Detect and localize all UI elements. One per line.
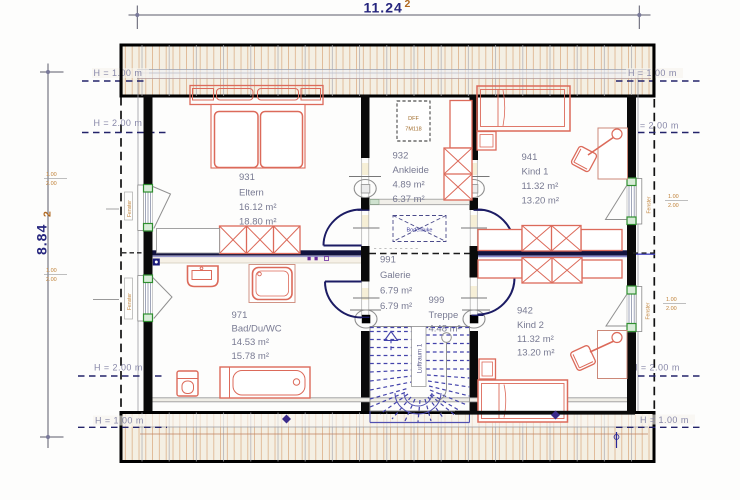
svg-text:Kind 1: Kind 1: [522, 167, 549, 178]
svg-text:1.00: 1.00: [46, 172, 57, 178]
svg-text:Kind 2: Kind 2: [517, 320, 544, 331]
svg-text:991: 991: [380, 255, 396, 266]
svg-text:4.89 m²: 4.89 m²: [393, 180, 425, 191]
svg-text:Fenster: Fenster: [127, 200, 133, 217]
svg-text:14.53 m²: 14.53 m²: [232, 337, 270, 348]
svg-text:13.20 m²: 13.20 m²: [522, 196, 560, 207]
svg-text:1.00: 1.00: [668, 194, 679, 200]
svg-text:1.00: 1.00: [666, 297, 677, 303]
svg-text:Treppe: Treppe: [429, 310, 459, 321]
svg-text:Bodenluke: Bodenluke: [407, 228, 433, 234]
svg-text:DFF: DFF: [408, 116, 419, 122]
svg-text:942: 942: [517, 306, 533, 317]
svg-text:8.84: 8.84: [34, 224, 50, 255]
svg-text:H = 2.00 m: H = 2.00 m: [94, 363, 143, 373]
svg-text:H = 2.00 m: H = 2.00 m: [630, 121, 679, 131]
svg-text:1.00: 1.00: [46, 268, 57, 274]
svg-text:H = 1.00 m: H = 1.00 m: [628, 68, 677, 78]
svg-text:Eltern: Eltern: [239, 188, 264, 199]
svg-text:H = 1.00 m: H = 1.00 m: [640, 415, 689, 425]
svg-text:2: 2: [405, 0, 411, 10]
svg-text:2.00: 2.00: [668, 203, 679, 209]
svg-text:16.12 m²: 16.12 m²: [239, 202, 277, 213]
svg-text:941: 941: [522, 152, 538, 163]
svg-text:Bad/Du/WC: Bad/Du/WC: [232, 324, 282, 335]
svg-text:11.32 m²: 11.32 m²: [517, 334, 554, 345]
svg-text:H = 1.00 m: H = 1.00 m: [94, 68, 143, 78]
svg-text:2.00: 2.00: [666, 306, 677, 312]
svg-text:2.00: 2.00: [46, 181, 57, 187]
svg-text:6.79 m²: 6.79 m²: [380, 301, 412, 312]
svg-text:Fenster: Fenster: [647, 196, 653, 213]
svg-text:Fenster: Fenster: [646, 302, 652, 319]
svg-text:2.00: 2.00: [46, 277, 57, 283]
svg-text:11.24: 11.24: [364, 0, 403, 16]
svg-text:6.79 m²: 6.79 m²: [380, 286, 412, 297]
svg-text:7M118: 7M118: [405, 127, 421, 133]
svg-text:H = 2.00 m: H = 2.00 m: [94, 118, 143, 128]
svg-text:931: 931: [239, 172, 255, 183]
svg-text:H = 2.00 m: H = 2.00 m: [631, 363, 680, 373]
svg-text:932: 932: [393, 151, 409, 162]
svg-text:15.78 m²: 15.78 m²: [232, 351, 270, 362]
svg-text:Galerie: Galerie: [380, 270, 411, 281]
svg-text:11.32 m²: 11.32 m²: [522, 181, 559, 192]
svg-text:6.37 m²: 6.37 m²: [393, 194, 425, 205]
svg-text:999: 999: [429, 295, 445, 306]
svg-text:13.20 m²: 13.20 m²: [517, 348, 555, 359]
svg-text:971: 971: [232, 310, 248, 321]
svg-text:2: 2: [42, 211, 54, 217]
svg-text:H = 1.00 m: H = 1.00 m: [95, 416, 144, 426]
svg-text:Fenster: Fenster: [127, 293, 133, 310]
svg-text:Ankleide: Ankleide: [393, 165, 429, 176]
svg-text:Luftraum 1: Luftraum 1: [416, 343, 423, 373]
